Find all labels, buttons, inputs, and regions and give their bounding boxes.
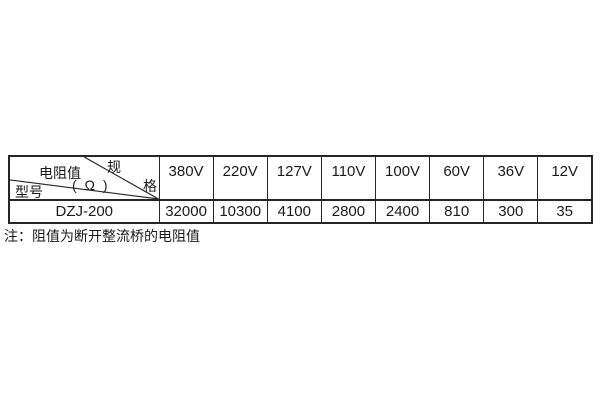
voltage-header-cell: 12V xyxy=(538,156,592,200)
voltage-header-cell: 380V xyxy=(159,156,213,200)
value-cell: 32000 xyxy=(159,200,213,223)
note-text: 注：阻值为断开整流桥的电阻值 xyxy=(4,228,200,244)
data-row: DZJ-200 32000 10300 4100 2800 2400 810 3… xyxy=(9,200,592,223)
model-cell: DZJ-200 xyxy=(9,200,159,223)
value-cell: 300 xyxy=(484,200,538,223)
voltage-header-cell: 100V xyxy=(376,156,430,200)
voltage-header-cell: 127V xyxy=(267,156,321,200)
value-cell: 810 xyxy=(430,200,484,223)
voltage-header-cell: 60V xyxy=(430,156,484,200)
corner-label-ohm: ( Ω ) xyxy=(72,178,110,192)
diagonal-header-cell: 规 格 电阻值 ( Ω ) 型号 xyxy=(9,156,159,200)
header-row: 规 格 电阻值 ( Ω ) 型号 380V 220V 127V 110V 100… xyxy=(9,156,592,200)
page-canvas: 规 格 电阻值 ( Ω ) 型号 380V 220V 127V 110V 100… xyxy=(0,0,600,400)
corner-label-model: 型号 xyxy=(15,185,43,199)
corner-label-spec-top: 规 xyxy=(107,160,121,174)
value-cell: 2400 xyxy=(376,200,430,223)
voltage-header-cell: 110V xyxy=(321,156,375,200)
value-cell: 2800 xyxy=(321,200,375,223)
value-cell: 10300 xyxy=(213,200,267,223)
corner-label-spec-bottom: 格 xyxy=(143,179,157,193)
value-cell: 4100 xyxy=(267,200,321,223)
voltage-header-cell: 220V xyxy=(213,156,267,200)
spec-table: 规 格 电阻值 ( Ω ) 型号 380V 220V 127V 110V 100… xyxy=(8,155,593,224)
voltage-header-cell: 36V xyxy=(484,156,538,200)
value-cell: 35 xyxy=(538,200,592,223)
